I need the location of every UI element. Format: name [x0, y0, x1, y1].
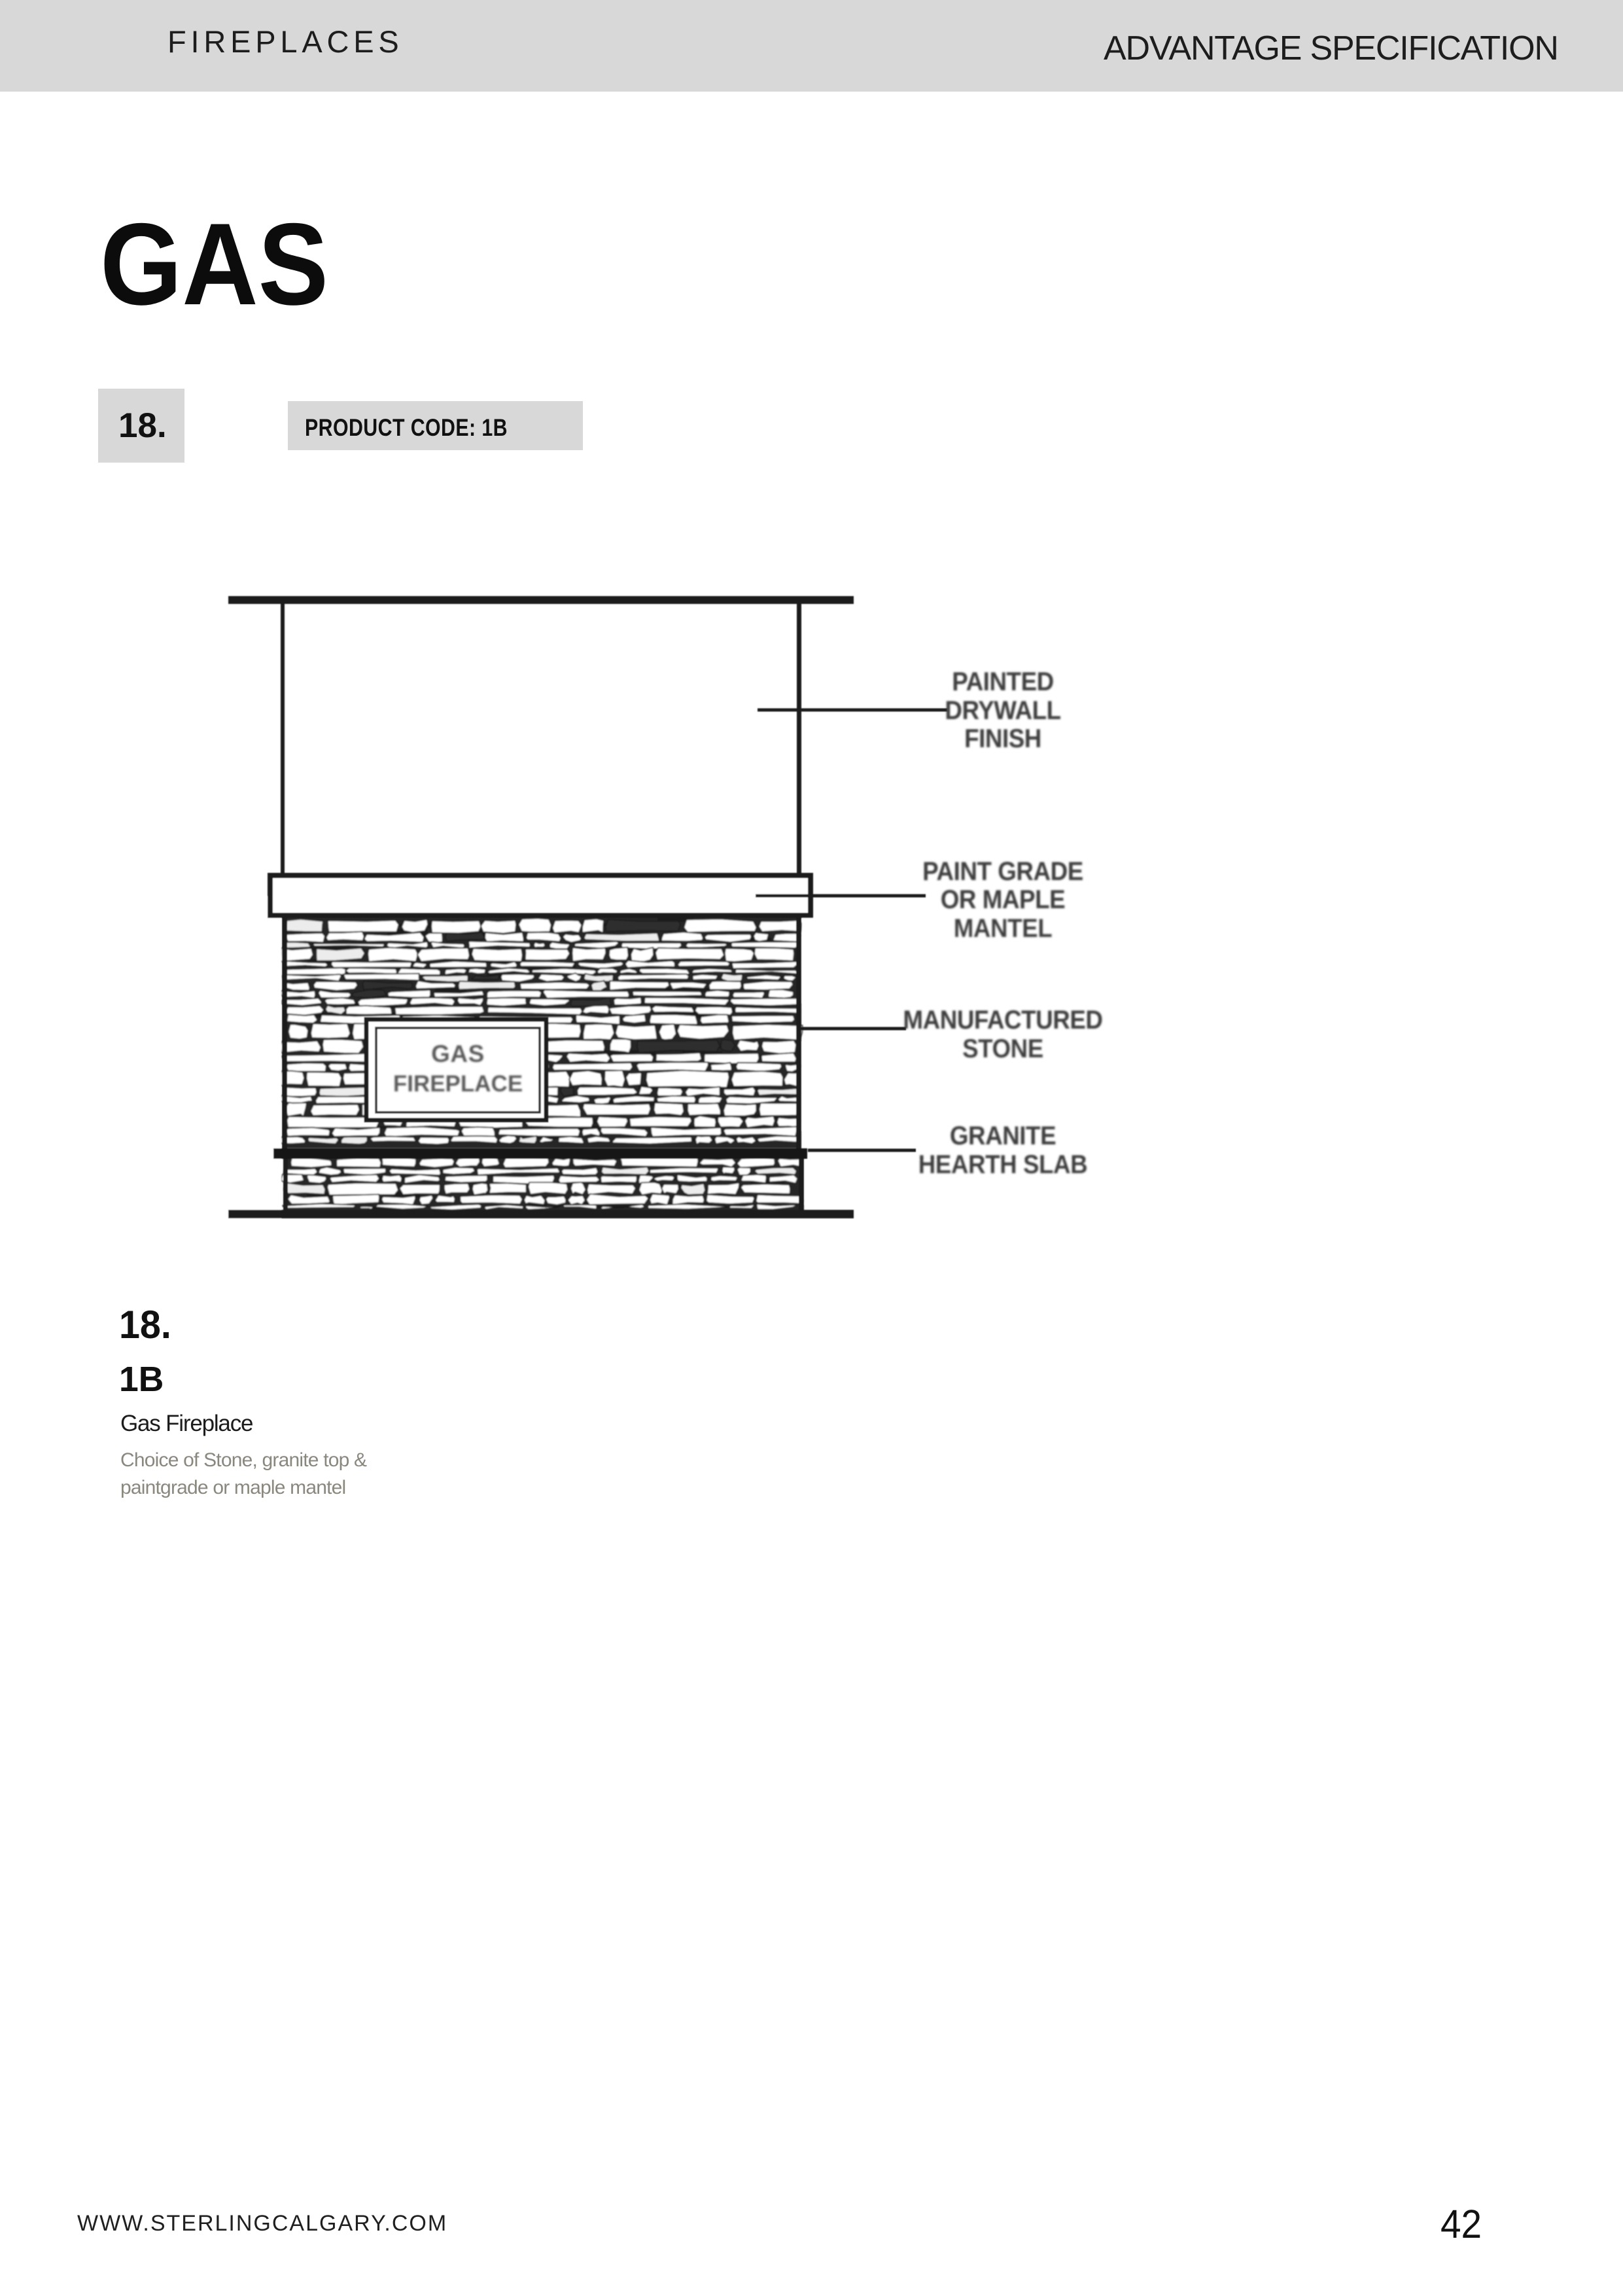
svg-text:MANUFACTURED: MANUFACTURED: [903, 1006, 1102, 1035]
svg-text:OR MAPLE: OR MAPLE: [941, 885, 1065, 915]
svg-text:GRANITE: GRANITE: [950, 1122, 1056, 1151]
svg-text:GAS: GAS: [431, 1040, 485, 1067]
svg-text:FINISH: FINISH: [964, 724, 1041, 754]
svg-text:DRYWALL: DRYWALL: [945, 696, 1060, 726]
svg-text:PAINTED: PAINTED: [952, 667, 1054, 697]
svg-text:HEARTH SLAB: HEARTH SLAB: [918, 1150, 1088, 1180]
svg-text:FIREPLACE: FIREPLACE: [393, 1071, 523, 1097]
svg-text:MANTEL: MANTEL: [954, 914, 1053, 944]
svg-text:PAINT GRADE: PAINT GRADE: [922, 857, 1083, 887]
svg-text:STONE: STONE: [962, 1034, 1043, 1064]
